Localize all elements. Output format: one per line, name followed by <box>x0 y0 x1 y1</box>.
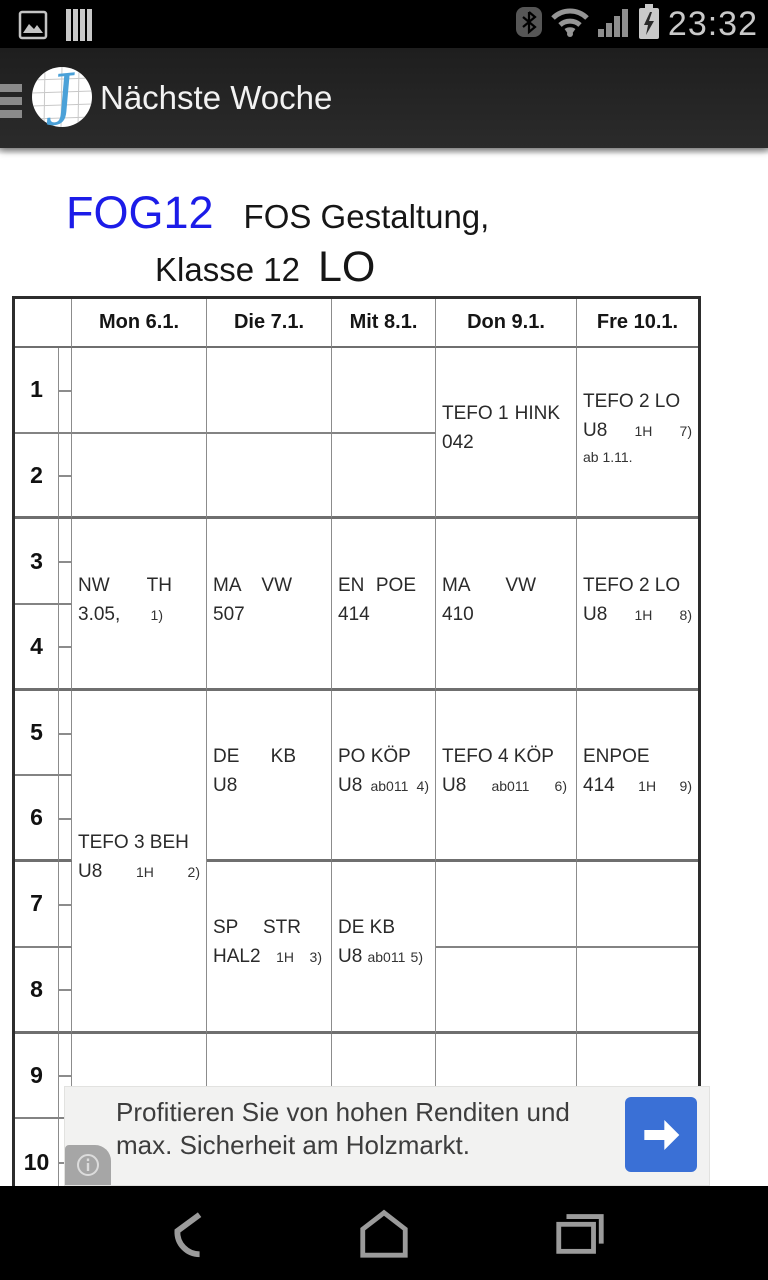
period-number-1: 1 <box>15 348 59 434</box>
app-title: Nächste Woche <box>100 48 332 148</box>
day-header-mit: Mit 8.1. <box>332 299 436 348</box>
period-number-9: 9 <box>15 1034 59 1120</box>
wifi-icon <box>550 6 590 43</box>
lesson-cell-die-r3[interactable]: MAVW507 <box>207 519 332 690</box>
teacher-code: LO <box>318 246 375 289</box>
empty-cell-fre-r8 <box>577 948 698 1034</box>
lesson-cell-don-r3[interactable]: MAVW410 <box>436 519 577 690</box>
lesson-cell-fre-r5[interactable]: ENPOE4141H9) <box>577 691 698 862</box>
ad-info-icon[interactable] <box>65 1145 111 1185</box>
signal-icon <box>598 5 630 44</box>
half-period-tick <box>59 862 72 948</box>
lesson-cell-die-r7[interactable]: SPSTRHAL21H3) <box>207 862 332 1033</box>
lesson-cell-fre-r3[interactable]: TEFO 2 LOU81H8) <box>577 519 698 690</box>
clock: 23:32 <box>668 5 758 44</box>
half-period-tick <box>59 605 72 691</box>
lesson-cell-don-r5[interactable]: TEFO 4 KÖPU8ab0116) <box>436 691 577 862</box>
lesson-cell-fre-r1[interactable]: TEFO 2 LOU81H7)ab 1.11. <box>577 348 698 519</box>
menu-drawer-handle-icon[interactable] <box>0 84 22 123</box>
period-number-5: 5 <box>15 691 59 777</box>
bluetooth-icon <box>516 5 542 44</box>
lesson-cell-mit-r5[interactable]: PO KÖPU8ab0114) <box>332 691 436 862</box>
app-logo[interactable]: J <box>31 66 93 133</box>
period-number-6: 6 <box>15 776 59 862</box>
day-header-mon: Mon 6.1. <box>72 299 207 348</box>
battery-charging-icon <box>638 4 660 45</box>
half-period-tick <box>59 519 72 605</box>
half-period-tick <box>59 434 72 520</box>
empty-cell-mit-r2 <box>332 434 436 520</box>
day-header-fre: Fre 10.1. <box>577 299 698 348</box>
back-icon[interactable] <box>157 1203 219 1263</box>
empty-cell-mon-r2 <box>72 434 207 520</box>
period-number-3: 3 <box>15 519 59 605</box>
half-period-tick <box>59 776 72 862</box>
period-number-8: 8 <box>15 948 59 1034</box>
lesson-cell-mit-r7[interactable]: DE KBU8ab0115) <box>332 862 436 1033</box>
lesson-cell-don-r1[interactable]: TEFO 1HINK042 <box>436 348 577 519</box>
arrow-right-icon[interactable] <box>625 1097 697 1172</box>
empty-cell-mon-r1 <box>72 348 207 434</box>
half-period-tick <box>59 348 72 434</box>
class-code: FOG12 <box>66 190 214 235</box>
lesson-cell-mon-r5[interactable]: TEFO 3 BEHU81H2) <box>72 691 207 1034</box>
half-period-tick <box>59 691 72 777</box>
status-bar: 23:32 <box>0 0 768 48</box>
home-icon[interactable] <box>353 1203 415 1263</box>
lesson-cell-mit-r3[interactable]: ENPOE414 <box>332 519 436 690</box>
day-header-die: Die 7.1. <box>207 299 332 348</box>
class-label: Klasse 12 <box>155 253 300 286</box>
recents-icon[interactable] <box>549 1203 611 1263</box>
lesson-cell-die-r5[interactable]: DEKBU8 <box>207 691 332 862</box>
ad-banner[interactable]: Profitieren Sie von hohen Renditen und m… <box>64 1086 710 1186</box>
app-bar: J Nächste Woche <box>0 48 768 148</box>
page-title-line2: Klasse 12 LO <box>155 246 375 289</box>
sim-stack-icon <box>66 8 94 47</box>
period-number-2: 2 <box>15 434 59 520</box>
empty-cell-don-r7 <box>436 862 577 948</box>
empty-cell-fre-r7 <box>577 862 698 948</box>
navigation-bar <box>0 1186 768 1280</box>
screenshot-icon <box>18 10 48 45</box>
ad-text: Profitieren Sie von hohen Renditen und m… <box>116 1096 570 1162</box>
period-number-7: 7 <box>15 862 59 948</box>
empty-cell-die-r2 <box>207 434 332 520</box>
empty-cell-don-r8 <box>436 948 577 1034</box>
timetable-corner <box>15 299 72 348</box>
class-subtitle: FOS Gestaltung, <box>244 200 490 233</box>
half-period-tick <box>59 948 72 1034</box>
timetable: Mon 6.1.Die 7.1.Mit 8.1.Don 9.1.Fre 10.1… <box>12 296 701 1205</box>
day-header-don: Don 9.1. <box>436 299 577 348</box>
lesson-cell-mon-r3[interactable]: NWTH3.05,1) <box>72 519 207 690</box>
empty-cell-mit-r1 <box>332 348 436 434</box>
page-title-line1: FOG12 FOS Gestaltung, <box>66 190 489 235</box>
period-number-4: 4 <box>15 605 59 691</box>
empty-cell-die-r1 <box>207 348 332 434</box>
